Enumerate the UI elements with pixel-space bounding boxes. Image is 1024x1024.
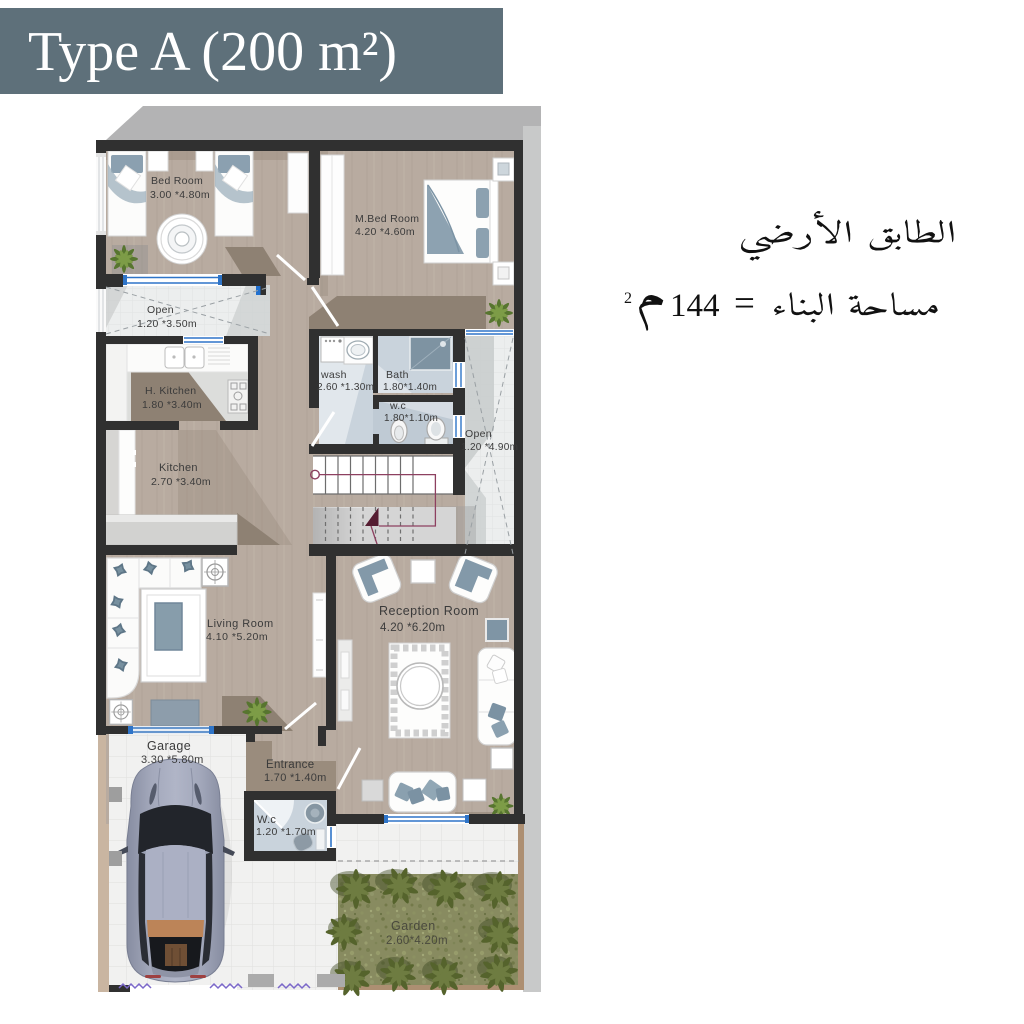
svg-text:W.c: W.c [257,814,276,826]
svg-text:1.70 *1.40m: 1.70 *1.40m [264,772,327,784]
svg-text:1.20 *4.90m: 1.20 *4.90m [461,442,518,453]
svg-text:Type A (200 m²): Type A (200 m²) [28,21,397,83]
svg-text:Garden: Garden [391,919,436,933]
svg-text:1.80 *3.40m: 1.80 *3.40m [142,399,202,411]
svg-text:4.10 *5.20m: 4.10 *5.20m [206,631,268,643]
svg-text:wash: wash [320,369,347,381]
svg-text:Reception Room: Reception Room [379,604,479,618]
svg-text:1.20 *1.70m: 1.20 *1.70m [256,826,316,838]
svg-text:144: 144 [670,288,720,324]
svg-text:H. Kitchen: H. Kitchen [145,385,196,397]
svg-text:Open: Open [147,304,174,316]
svg-text:M.Bed Room: M.Bed Room [355,213,419,225]
svg-text:w.c: w.c [389,400,406,412]
svg-text:Kitchen: Kitchen [159,462,198,474]
svg-text:1.20 *3.50m: 1.20 *3.50m [137,318,197,330]
svg-text:3.00 *4.80m: 3.00 *4.80m [150,189,210,201]
svg-text:4.20 *4.60m: 4.20 *4.60m [355,226,415,238]
svg-text:Open: Open [465,428,492,440]
svg-text:4.20 *6.20m: 4.20 *6.20m [380,622,445,634]
svg-text:Living Room: Living Room [207,618,274,630]
svg-text:Bed Room: Bed Room [151,175,203,187]
svg-text:2: 2 [624,290,632,307]
svg-text:Entrance: Entrance [266,759,314,771]
svg-text:2.60*4.20m: 2.60*4.20m [386,935,448,947]
svg-text:1.80*1.40m: 1.80*1.40m [383,382,437,393]
svg-text:=: = [734,283,755,324]
svg-text:Bath: Bath [386,369,409,381]
svg-text:1.80*1.10m: 1.80*1.10m [384,413,438,424]
svg-text:Garage: Garage [147,739,191,753]
svg-text:3.30 *5.80m: 3.30 *5.80m [141,754,204,766]
svg-text:2.70 *3.40m: 2.70 *3.40m [151,476,211,488]
svg-text:2.60 *1.30m: 2.60 *1.30m [317,382,374,393]
